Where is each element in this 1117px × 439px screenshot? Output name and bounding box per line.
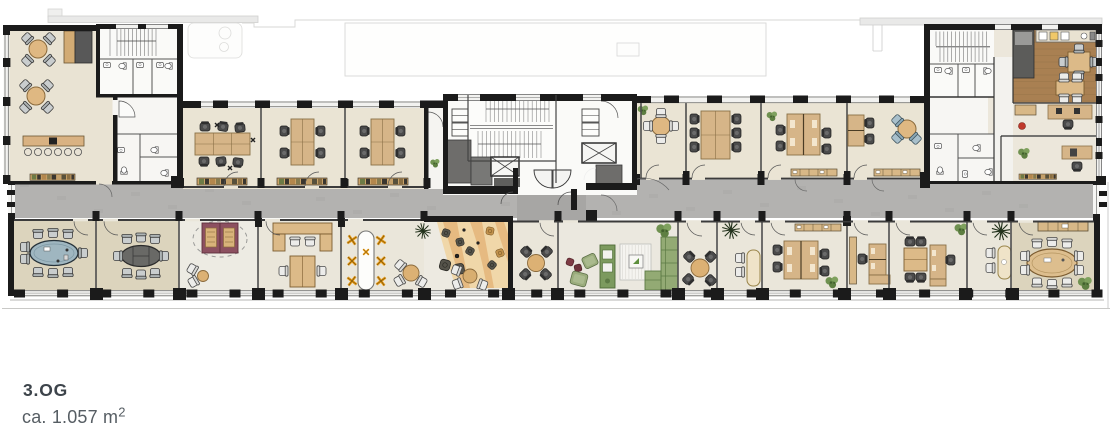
svg-text:3.OG: 3.OG xyxy=(23,380,68,400)
svg-text:ca. 1.057 m2: ca. 1.057 m2 xyxy=(22,405,126,428)
